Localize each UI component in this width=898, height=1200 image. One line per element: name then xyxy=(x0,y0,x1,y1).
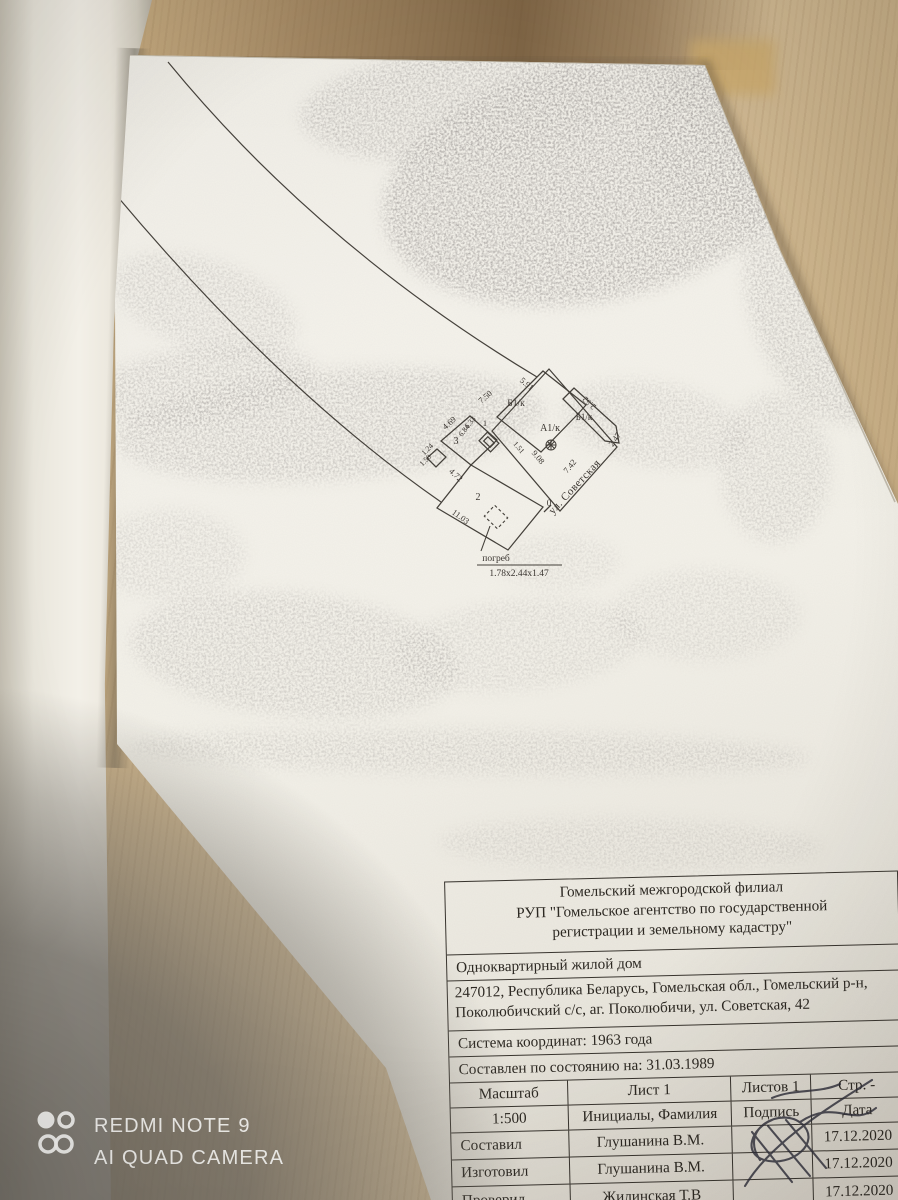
signature-cell xyxy=(732,1179,813,1200)
room-label-2: 2 xyxy=(476,492,481,503)
room-label-3: 3 xyxy=(454,436,459,447)
cellar-label: погреб xyxy=(482,553,510,564)
room-label-1: 1 xyxy=(483,419,487,428)
title-block-table: Гомельский межгородской филиал РУП "Гоме… xyxy=(444,870,898,1200)
watermark-line1: REDMI NOTE 9 xyxy=(94,1110,284,1142)
room-label-b1k-wing: Б1/к xyxy=(576,412,593,422)
page-label: Стр. - xyxy=(810,1072,898,1098)
name-header: Инициалы, Фамилия xyxy=(568,1102,732,1130)
date-cell: 17.12.2020 xyxy=(811,1122,898,1150)
photo-of-document: Б1/к Б1/к А1/к 3 2 1 7.50 5.91 2.52 2.47… xyxy=(0,0,898,1200)
signature-cell xyxy=(731,1125,812,1153)
date-cell: 17.12.2020 xyxy=(812,1176,898,1200)
date-header: Дата xyxy=(811,1097,898,1123)
date-cell: 17.12.2020 xyxy=(812,1149,898,1177)
room-label-a1k: А1/к xyxy=(540,423,560,434)
room-label-b1k-top: Б1/к xyxy=(507,399,525,409)
signature-header: Подпись xyxy=(731,1100,812,1126)
sheets-label: Листов 1 xyxy=(730,1075,811,1101)
name-cell: Жилинская Т.В xyxy=(570,1181,734,1200)
name-cell: Глушанина В.М. xyxy=(569,1154,733,1184)
camera-watermark: REDMI NOTE 9 AI QUAD CAMERA xyxy=(36,1110,284,1175)
role-cell: Составил xyxy=(451,1131,569,1160)
benchmark-icon xyxy=(546,440,556,450)
signature-cell xyxy=(732,1152,813,1180)
watermark-line2: AI QUAD CAMERA xyxy=(94,1142,284,1174)
cellar-size: 1.78х2.44х1.47 xyxy=(489,569,549,579)
role-cell: Изготовил xyxy=(452,1158,570,1187)
redmi-logo-icon xyxy=(36,1110,78,1156)
scale-value: 1:500 xyxy=(451,1106,569,1133)
name-cell: Глушанина В.М. xyxy=(568,1127,732,1157)
sheet-label: Лист 1 xyxy=(567,1077,731,1105)
scale-label: Масштаб xyxy=(450,1081,568,1108)
org-header-row: Гомельский межгородской филиал РУП "Гоме… xyxy=(445,871,898,954)
role-cell: Проверил xyxy=(453,1185,571,1200)
